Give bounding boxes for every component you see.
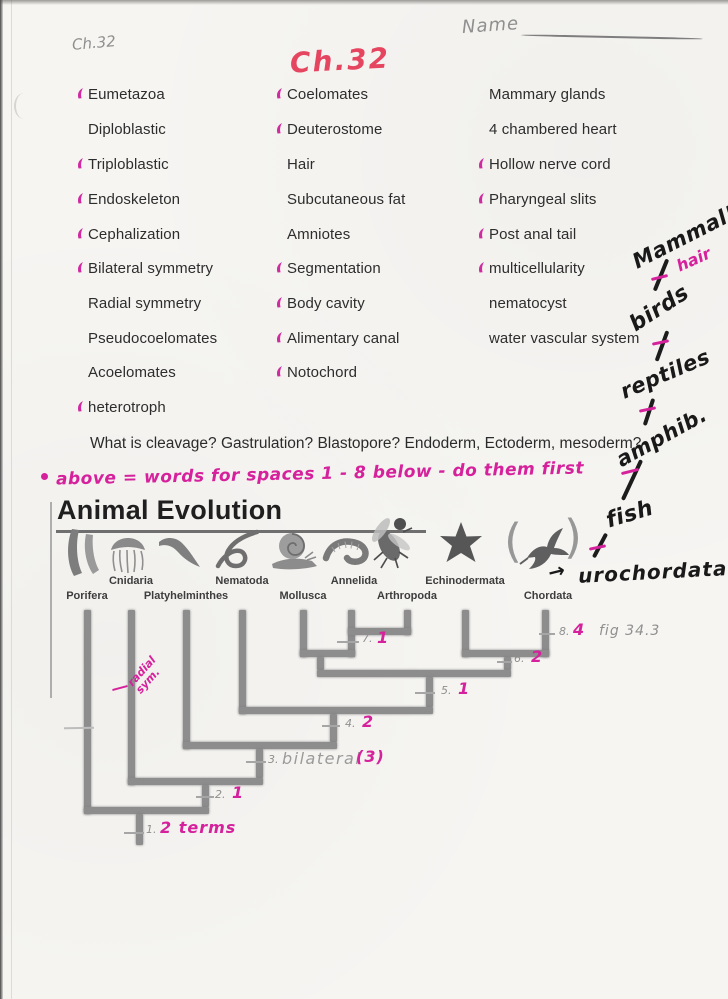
term-label: Radial symmetry <box>88 295 201 312</box>
chapter-label-pink: Ch.32 <box>289 44 390 77</box>
node-tick-2 <box>196 796 214 798</box>
pink-check-mark <box>76 227 85 243</box>
node-answer: 2 <box>362 714 374 730</box>
term-label: Alimentary canal <box>287 330 399 347</box>
pink-check-mark <box>275 122 284 138</box>
arthropoda-insect-icon <box>369 502 415 572</box>
term-item: Acoelomates <box>88 365 176 380</box>
term-item: Post anal tail <box>489 227 576 242</box>
node-tick-6 <box>497 661 512 663</box>
term-label: Coelomates <box>287 86 368 103</box>
scanned-worksheet-page: Ch.32 Ch.32 Name Eumetazoa Diploblastic … <box>0 0 728 999</box>
porifera-sponge-icon <box>58 526 102 578</box>
term-item: Cephalization <box>88 227 180 242</box>
node-tick-4 <box>322 725 340 727</box>
term-label: multicellularity <box>489 260 585 277</box>
stem-protostome <box>317 657 324 670</box>
stem-pseudocoelomates <box>330 714 337 742</box>
chain-stroke <box>643 398 655 426</box>
branch-porifera <box>84 610 91 814</box>
term-item: nematocyst <box>489 296 567 311</box>
node-number: 8. <box>559 626 570 637</box>
pink-check-mark <box>275 296 284 312</box>
chain-stroke <box>655 330 670 361</box>
term-label: Subcutaneous fat <box>287 191 405 208</box>
term-label: Eumetazoa <box>88 86 165 103</box>
pink-bullet <box>41 473 48 480</box>
term-label: water vascular system <box>489 330 639 347</box>
term-item: Pseudocoelomates <box>88 331 217 346</box>
junction-coelomates <box>317 670 511 677</box>
term-item: Notochord <box>287 365 357 380</box>
platyhelminthes-flatworm-icon <box>156 534 202 570</box>
term-label: 4 chambered heart <box>489 121 617 138</box>
node-number: 1. <box>146 824 157 835</box>
pink-check-mark <box>76 400 85 416</box>
branch-cnidaria <box>128 610 135 785</box>
term-item: heterotroph <box>88 400 166 415</box>
term-label: Cephalization <box>88 226 180 243</box>
term-item: Diploblastic <box>88 122 166 137</box>
term-item: Bilateral symmetry <box>88 261 213 276</box>
node-number: 4. <box>345 718 356 729</box>
term-label: Mammary glands <box>489 86 605 103</box>
stem-deuterostome <box>504 657 511 670</box>
pink-instruction-note: above = words for spaces 1 - 8 below - d… <box>56 460 584 488</box>
term-label: Hollow nerve cord <box>489 156 611 173</box>
node-answer: (3) <box>356 749 385 765</box>
term-item: Alimentary canal <box>287 331 399 346</box>
term-label: Pharyngeal slits <box>489 191 597 208</box>
term-item: Coelomates <box>287 87 368 102</box>
term-label: heterotroph <box>88 399 166 416</box>
name-label: Name <box>461 15 519 37</box>
chain-label-fish: fish <box>604 497 656 532</box>
term-label: Deuterostome <box>287 121 382 138</box>
pink-check-mark <box>477 157 486 173</box>
phylum-label-annelida: Annelida <box>331 576 377 587</box>
phylum-label-porifera: Porifera <box>66 591 108 602</box>
term-item: Subcutaneous fat <box>287 192 405 207</box>
node-answer: 1 <box>458 681 470 697</box>
pink-check-mark <box>275 365 284 381</box>
pink-check-mark <box>275 261 284 277</box>
node-number: 7. <box>362 633 373 644</box>
phylum-label-nematoda: Nematoda <box>215 576 268 587</box>
node-tick-3 <box>246 761 266 763</box>
term-item: Amniotes <box>287 227 350 242</box>
figure-title: Animal Evolution <box>57 497 282 524</box>
pink-check-mark <box>275 331 284 347</box>
term-label: Notochord <box>287 364 357 381</box>
name-blank-line <box>521 34 703 40</box>
phylum-label-arthropoda: Arthropoda <box>377 591 437 602</box>
junction-platyhelminthes <box>183 742 337 749</box>
chain-label-urochordata: urochordata <box>578 558 728 586</box>
phylum-label-chordata: Chordata <box>524 591 572 602</box>
node-number: 6. <box>514 653 525 664</box>
term-item: Eumetazoa <box>88 87 165 102</box>
node-answer: 1 <box>232 785 244 801</box>
stem-root <box>136 814 143 845</box>
junction-nematoda <box>239 707 433 714</box>
pink-check-mark <box>477 261 486 277</box>
term-item: Radial symmetry <box>88 296 201 311</box>
phylum-label-echinodermata: Echinodermata <box>425 576 504 587</box>
scan-edge-top <box>0 0 728 5</box>
pink-check-mark <box>76 87 85 103</box>
pink-check-mark <box>76 192 85 208</box>
echinodermata-starfish-icon <box>437 520 485 566</box>
nematoda-roundworm-icon <box>215 528 261 572</box>
term-label: Acoelomates <box>88 364 176 381</box>
pink-check-mark <box>275 87 284 103</box>
node-answer: 2 <box>531 649 543 665</box>
chain-label-birds: birds <box>626 282 693 336</box>
branch-nematoda <box>239 610 246 714</box>
node-number: 5. <box>441 685 452 696</box>
node-answer: 1 <box>377 630 389 646</box>
node-number: 3. <box>268 754 279 765</box>
term-item: Endoskeleton <box>88 192 180 207</box>
annelida-worm-icon <box>322 532 372 568</box>
figure-margin-line <box>50 502 52 698</box>
scan-edge-line <box>11 0 12 999</box>
term-item: Body cavity <box>287 296 365 311</box>
term-label: Triploblastic <box>88 156 169 173</box>
junction-mollusca-clade <box>300 650 355 657</box>
figure-reference: fig 34.3 <box>599 624 660 638</box>
term-label: Diploblastic <box>88 121 166 138</box>
node-number: 2. <box>215 789 226 800</box>
term-item: Triploblastic <box>88 157 169 172</box>
term-item: Segmentation <box>287 261 381 276</box>
cnidaria-jellyfish-icon <box>107 528 149 576</box>
chain-label-reptiles: reptiles <box>618 346 713 402</box>
node-tick-1 <box>124 832 144 834</box>
branch-platyhelminthes <box>183 610 190 749</box>
term-label: Pseudocoelomates <box>88 330 217 347</box>
term-item: Hollow nerve cord <box>489 157 611 172</box>
junction-root <box>84 807 209 814</box>
term-label: Segmentation <box>287 260 381 277</box>
term-label: Amniotes <box>287 226 350 243</box>
phylum-label-platyhelminthes: Platyhelminthes <box>144 591 228 602</box>
annotation-pointer <box>112 685 128 691</box>
term-item: Hair <box>287 157 315 172</box>
term-item: water vascular system <box>489 331 639 346</box>
scan-edge-left <box>0 0 3 999</box>
chapter-label-pencil: Ch.32 <box>71 34 116 53</box>
question-text: What is cleavage? Gastrulation? Blastopo… <box>90 436 641 452</box>
stray-pencil-mark <box>14 93 34 119</box>
term-label: Endoskeleton <box>88 191 180 208</box>
node-answer: 4 <box>573 622 585 638</box>
stem-bilateria <box>256 749 263 778</box>
term-item: Mammary glands <box>489 87 605 102</box>
term-item: Pharyngeal slits <box>489 192 597 207</box>
pink-check-mark <box>477 192 486 208</box>
term-label: Body cavity <box>287 295 365 312</box>
term-item: multicellularity <box>489 261 585 276</box>
node-tick-8 <box>539 633 555 635</box>
mollusca-snail-icon <box>268 528 320 572</box>
node-tick-5 <box>415 692 435 694</box>
node-tick-7 <box>337 641 359 643</box>
term-item: 4 chambered heart <box>489 122 617 137</box>
node-pencil-word: bilateral <box>282 751 361 767</box>
term-item: Deuterostome <box>287 122 382 137</box>
term-label: Post anal tail <box>489 226 576 243</box>
term-label: nematocyst <box>489 295 567 312</box>
term-label: Hair <box>287 156 315 173</box>
pink-check-mark <box>477 227 486 243</box>
pencil-paren-right: ) <box>564 514 582 560</box>
phylum-label-cnidaria: Cnidaria <box>109 576 153 587</box>
term-label: Bilateral symmetry <box>88 260 213 277</box>
phylum-label-mollusca: Mollusca <box>279 591 326 602</box>
pink-check-mark <box>76 157 85 173</box>
node-answer: 2 terms <box>160 820 236 836</box>
pink-check-mark <box>76 261 85 277</box>
